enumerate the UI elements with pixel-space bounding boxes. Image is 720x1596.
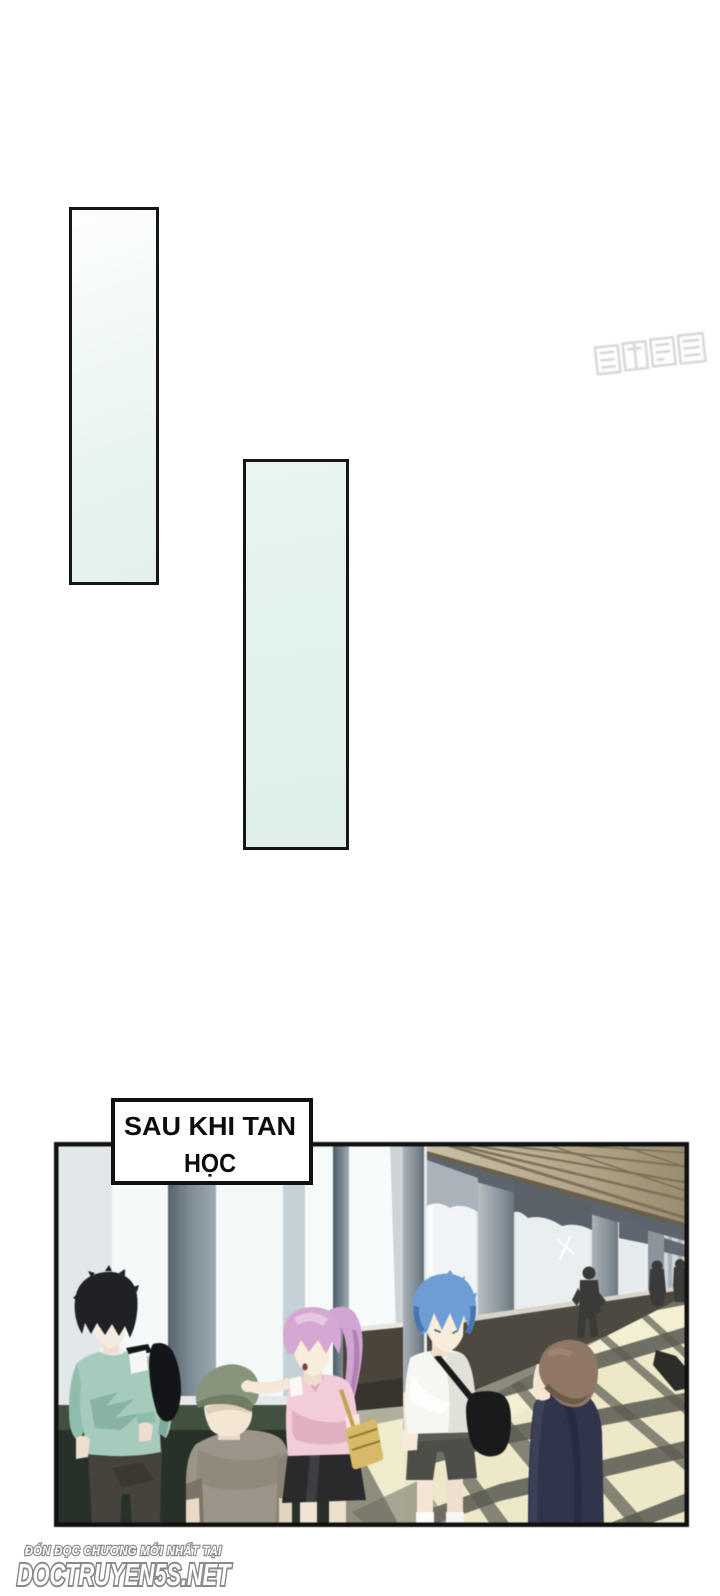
svg-text:HỌC: HỌC xyxy=(184,1148,236,1178)
svg-text:SAU KHI TAN: SAU KHI TAN xyxy=(124,1111,296,1141)
